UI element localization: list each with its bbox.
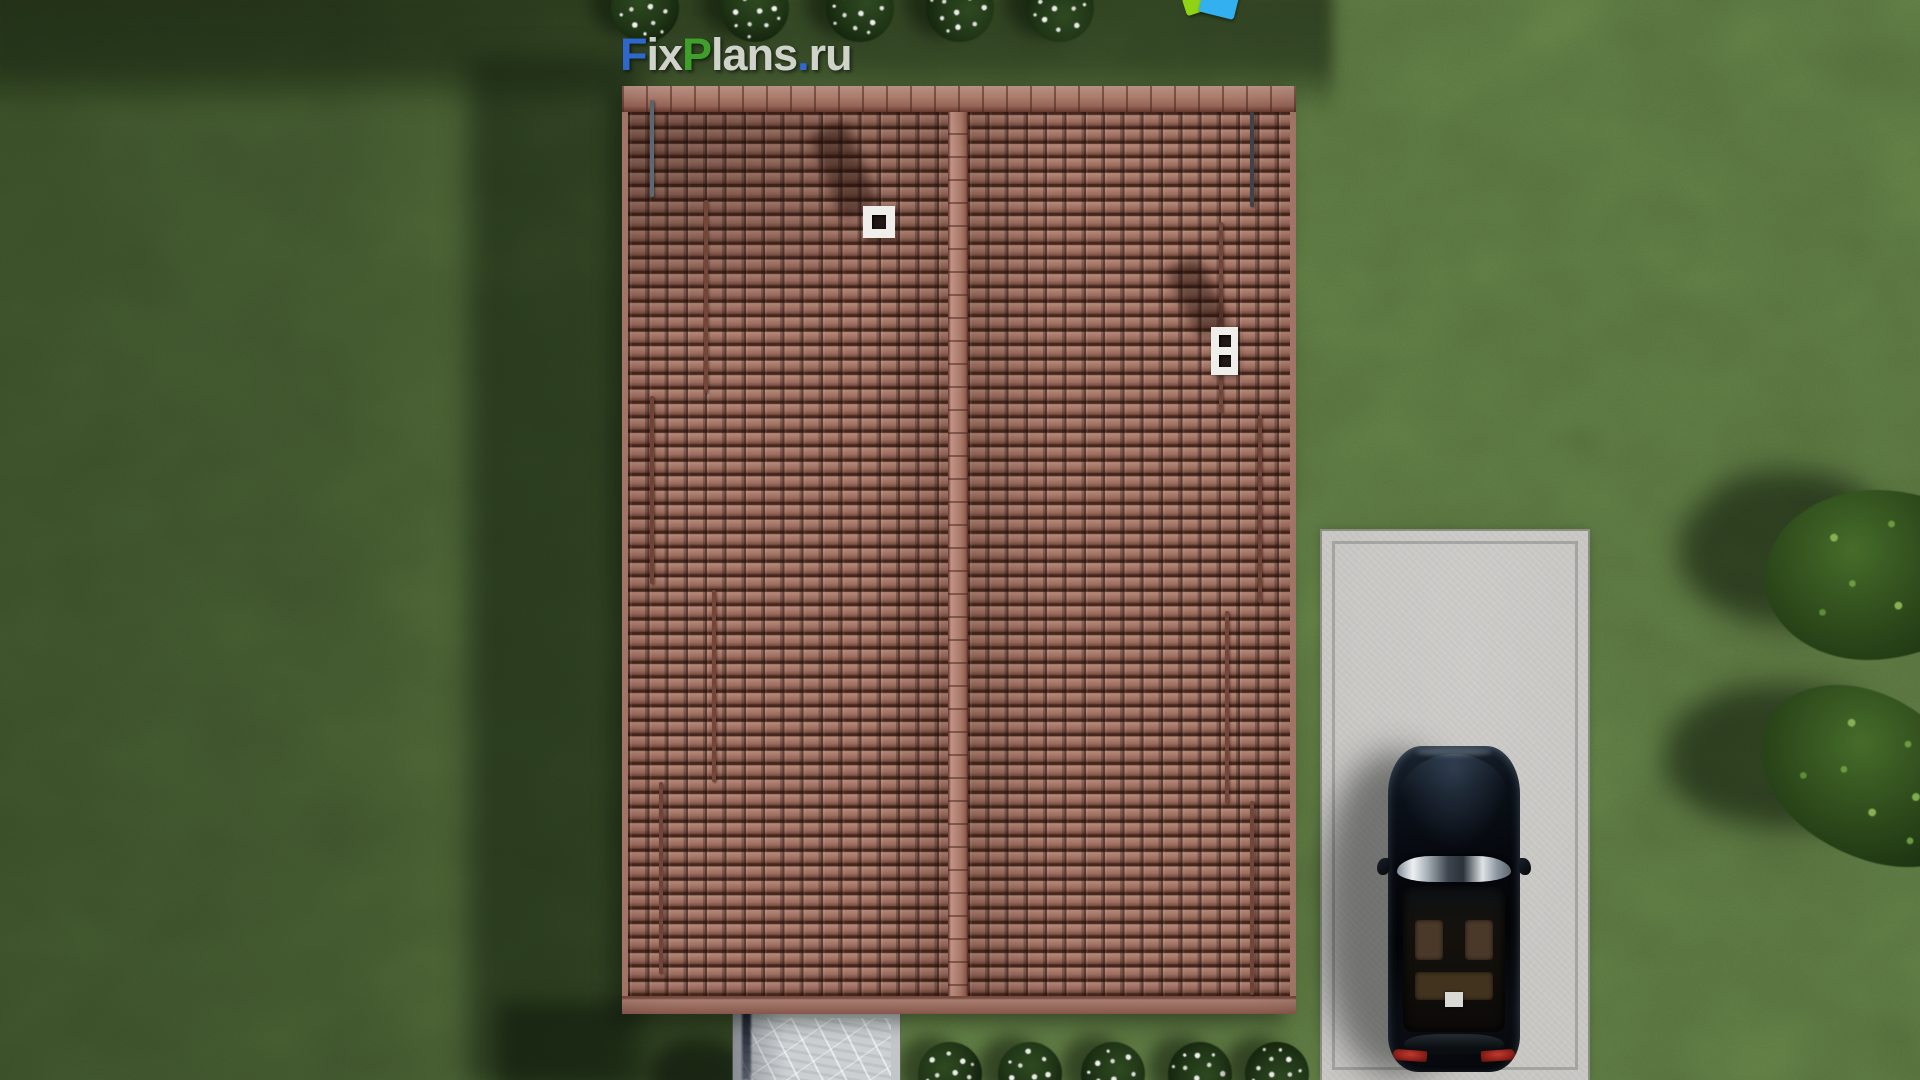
roof-rod <box>1225 611 1229 803</box>
car <box>1388 746 1520 1072</box>
car-cabin <box>1403 886 1505 1032</box>
logo-letter: ru <box>809 29 852 80</box>
car-taillight-right <box>1481 1049 1516 1062</box>
roof-ridge-vertical <box>948 110 968 996</box>
chimney <box>1211 327 1238 375</box>
roof-rod <box>1258 415 1262 603</box>
walkway <box>733 1012 900 1080</box>
car-seat-front-left <box>1415 920 1443 960</box>
car-trunk-panel <box>1445 992 1463 1007</box>
logo-letter: P <box>682 29 711 80</box>
car-mirror-right <box>1518 858 1531 875</box>
roof-rod <box>712 590 716 782</box>
roof-rod <box>650 396 654 584</box>
car-hood-glare <box>1398 754 1510 849</box>
logo-letter: F <box>620 29 647 80</box>
walkway-shading <box>733 1012 900 1080</box>
logo-letter: ix <box>647 29 683 80</box>
roof-eaves <box>622 996 1296 1014</box>
logo-letter: . <box>797 29 809 80</box>
chimney-flue-hole <box>872 215 886 229</box>
car-mirror-left <box>1377 858 1390 875</box>
roof-rod <box>1250 112 1254 207</box>
roof-rod <box>659 782 663 974</box>
roof-slope-right <box>968 112 1290 996</box>
roof-fascia-right <box>1290 112 1296 996</box>
scene: FixPlans.ru <box>0 0 1920 1080</box>
house-roof <box>622 86 1296 1014</box>
roof-rod <box>1250 801 1254 995</box>
car-seat-front-right <box>1465 920 1493 960</box>
roof-rod <box>650 100 654 197</box>
roof-ridge-top <box>622 86 1296 112</box>
chimney-flue-hole <box>1219 335 1231 347</box>
watermark-logo: FixPlans.ru <box>620 32 852 77</box>
roof-slope-left <box>628 112 948 996</box>
car-windshield <box>1397 856 1511 882</box>
chimney <box>863 206 895 238</box>
roof-rod <box>704 200 708 393</box>
car-taillight-left <box>1393 1049 1428 1062</box>
chimney-flue-hole <box>1219 355 1231 367</box>
logo-letter: lans <box>711 29 797 80</box>
